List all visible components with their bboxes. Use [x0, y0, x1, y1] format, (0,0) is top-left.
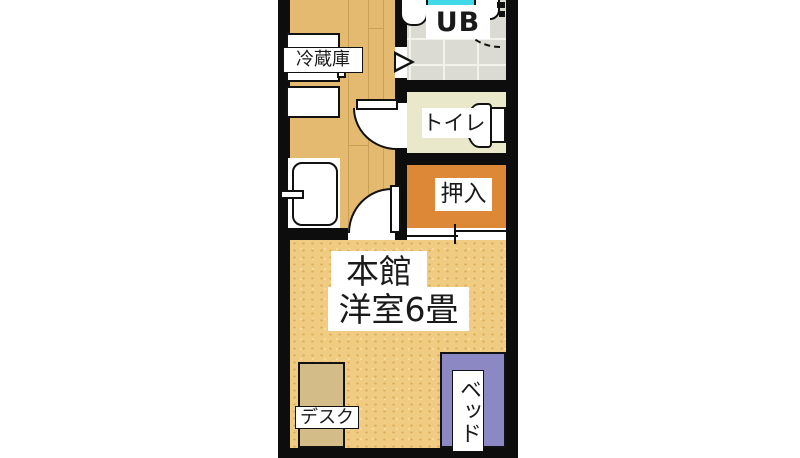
main-room-building-label: 本館 — [331, 251, 427, 291]
sliding-door-tick — [454, 224, 456, 244]
floor-plan-canvas: UB 冷蔵庫 トイレ 押入 本館 洋室6畳 デスク — [0, 0, 800, 458]
plank-line — [348, 0, 349, 228]
main-room-size-label: 洋室6畳 — [328, 287, 469, 331]
toilet-label: トイレ — [422, 108, 486, 138]
desk — [298, 362, 345, 448]
plank-seam — [368, 28, 383, 29]
main-room-door-leaf — [390, 185, 401, 233]
washbasin — [400, 0, 428, 26]
sink-faucet — [280, 190, 304, 199]
sliding-door-panel — [407, 235, 458, 237]
floor-plan: UB 冷蔵庫 トイレ 押入 本館 洋室6畳 デスク — [278, 0, 518, 458]
toilet-door-leaf — [356, 99, 398, 110]
door-hinge-mark — [499, 11, 505, 17]
door-hinge-mark — [497, 2, 505, 8]
sliding-door-panel — [455, 230, 506, 232]
refrigerator-label: 冷蔵庫 — [283, 47, 363, 73]
bed-label: ベッド — [452, 370, 484, 452]
unit-bath-label: UB — [426, 5, 490, 39]
plank-seam — [348, 145, 368, 146]
kitchen-counter — [286, 86, 340, 118]
desk-label: デスク — [295, 406, 359, 429]
closet-label: 押入 — [435, 178, 492, 211]
opening-arrow-icon-fill — [396, 55, 410, 69]
